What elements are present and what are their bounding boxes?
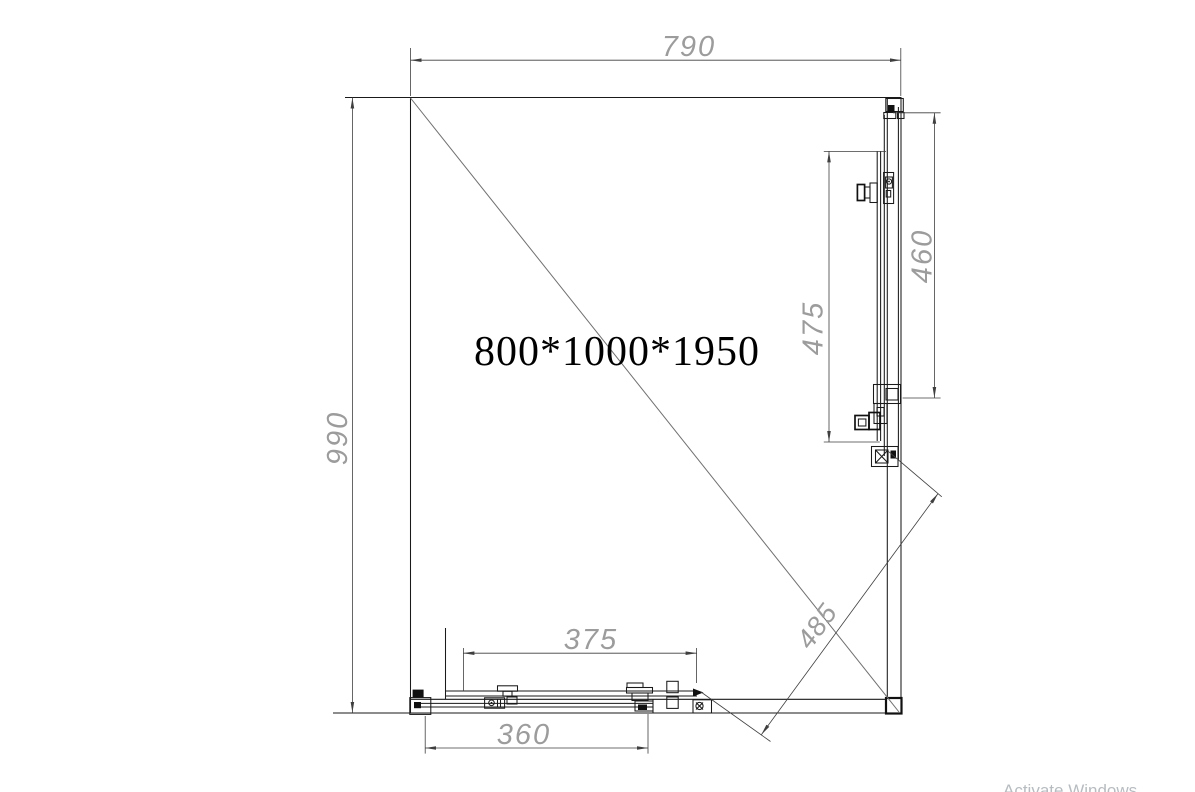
dim-diagonal-label: 485 <box>791 598 844 654</box>
bottom-rail <box>418 628 697 713</box>
cad-canvas: 790 990 475 460 375 360 485 800*1000*195… <box>0 0 1195 792</box>
right-top-roller <box>857 173 893 204</box>
watermark-text: Activate Windows <box>1003 781 1137 792</box>
dim-bottom-inner: 375 <box>463 624 696 691</box>
dim-left: 990 <box>322 98 354 713</box>
dim-bottom-inner-label: 375 <box>564 624 618 656</box>
product-size-title: 800*1000*1950 <box>474 329 760 375</box>
dim-right-inner-label: 475 <box>798 301 830 355</box>
bottom-roller-a <box>485 686 518 708</box>
dim-diagonal: 485 <box>701 452 942 742</box>
door-knob <box>857 185 864 201</box>
cad-drawing-page: 790 990 475 460 375 360 485 800*1000*195… <box>0 0 1195 792</box>
dim-right-outer-label: 460 <box>907 229 939 283</box>
dim-bottom-outer-label: 360 <box>497 719 551 751</box>
dim-bottom-outer: 360 <box>425 714 648 754</box>
dim-right-inner: 475 <box>798 151 887 442</box>
dim-right-outer: 460 <box>893 113 941 398</box>
dim-left-label: 990 <box>322 411 354 465</box>
right-bottom-roller <box>855 385 901 430</box>
bottom-left-corner-bracket <box>410 690 431 715</box>
door-knob <box>855 416 869 430</box>
dim-top-label: 790 <box>662 31 716 63</box>
dim-top: 790 <box>411 31 901 96</box>
bottom-right-stop-blocks <box>667 681 712 713</box>
